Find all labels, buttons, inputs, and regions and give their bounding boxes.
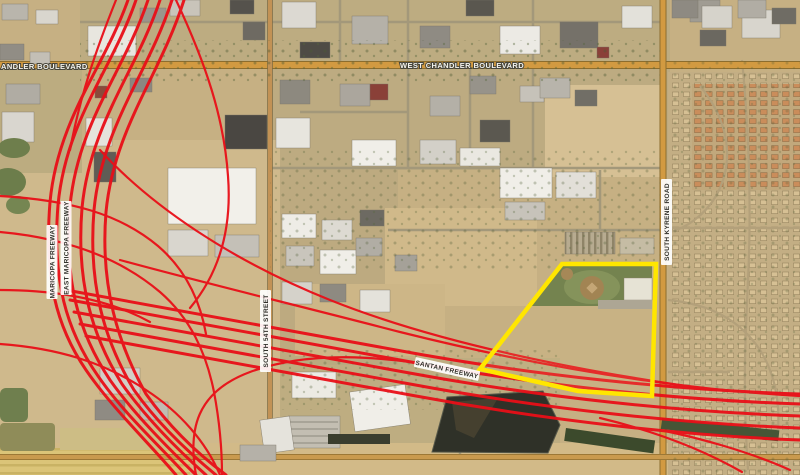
- map-canvas: ANDLER BOULEVARD WEST CHANDLER BOULEVARD…: [0, 0, 800, 475]
- west-chandler-boulevard-label: WEST CHANDLER BOULEVARD: [400, 61, 524, 70]
- chandler-boulevard-label: ANDLER BOULEVARD: [1, 62, 88, 71]
- svg-text:SOUTH 54TH STREET: SOUTH 54TH STREET: [263, 295, 270, 368]
- farm-field: [0, 448, 190, 475]
- svg-text:MARICOPA FREEWAY: MARICOPA FREEWAY: [50, 225, 57, 298]
- south-kyrene-road-label: SOUTH KYRENE ROAD: [661, 179, 672, 265]
- svg-text:SOUTH KYRENE ROAD: SOUTH KYRENE ROAD: [664, 183, 671, 261]
- svg-text:EAST MARICOPA FREEWAY: EAST MARICOPA FREEWAY: [64, 201, 71, 295]
- south-54th-street-label: SOUTH 54TH STREET: [260, 290, 271, 372]
- maricopa-freeway-label: MARICOPA FREEWAY: [47, 225, 58, 299]
- aerial-map: ANDLER BOULEVARD WEST CHANDLER BOULEVARD…: [0, 0, 800, 475]
- large-warehouse: [168, 168, 256, 224]
- east-maricopa-freeway-label: EAST MARICOPA FREEWAY: [61, 201, 72, 295]
